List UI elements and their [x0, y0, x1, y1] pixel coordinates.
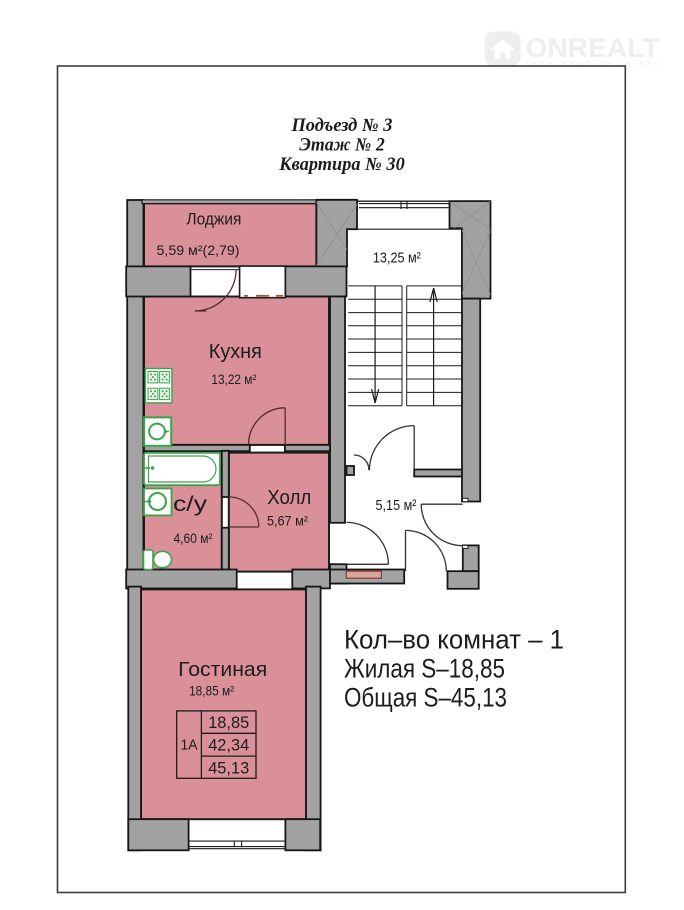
svg-text:Кухня: Кухня — [209, 341, 262, 363]
svg-text:13,22 м²: 13,22 м² — [211, 371, 256, 387]
svg-text:13,25 м²: 13,25 м² — [373, 249, 421, 266]
svg-text:5,15 м²: 5,15 м² — [376, 497, 417, 514]
svg-text:Лоджия: Лоджия — [186, 210, 241, 229]
svg-text:45,13: 45,13 — [208, 758, 249, 777]
svg-text:18,85 м²: 18,85 м² — [189, 683, 234, 699]
svg-text:Кол–во комнат – 1: Кол–во комнат – 1 — [344, 625, 564, 655]
svg-text:Жилая S–18,85: Жилая S–18,85 — [344, 654, 505, 684]
svg-text:18,85: 18,85 — [208, 713, 249, 732]
svg-text:5,59 м²(2,79): 5,59 м²(2,79) — [157, 243, 240, 258]
svg-text:с/у: с/у — [173, 493, 208, 516]
svg-text:1А: 1А — [181, 738, 198, 754]
svg-text:Этаж № 2: Этаж № 2 — [299, 136, 385, 156]
svg-text:Квартира № 30: Квартира № 30 — [278, 155, 404, 175]
svg-text:Общая S–45,13: Общая S–45,13 — [344, 683, 507, 713]
svg-text:Подъезд № 3: Подъезд № 3 — [291, 116, 393, 136]
svg-text:Гостиная: Гостиная — [178, 659, 267, 681]
svg-text:42,34: 42,34 — [208, 736, 249, 755]
svg-text:ONREALT: ONREALT — [526, 33, 660, 63]
svg-text:Холл: Холл — [267, 487, 311, 509]
svg-text:4,60 м²: 4,60 м² — [174, 530, 213, 546]
svg-text:5,67 м²: 5,67 м² — [267, 513, 308, 529]
